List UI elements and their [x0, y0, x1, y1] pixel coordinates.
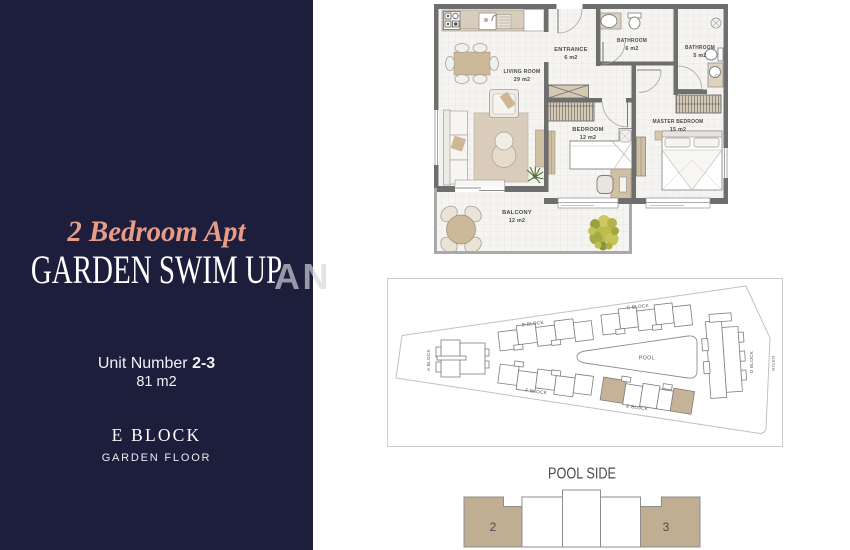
- svg-text:POOL: POOL: [639, 356, 655, 362]
- svg-text:POOL SIDE: POOL SIDE: [548, 466, 616, 483]
- svg-text:6 m2: 6 m2: [625, 46, 638, 52]
- svg-text:BATHROOM: BATHROOM: [617, 38, 647, 44]
- svg-text:BEDROOM: BEDROOM: [572, 127, 603, 133]
- svg-text:BATHROOM: BATHROOM: [685, 45, 715, 51]
- svg-text:12 m2: 12 m2: [509, 218, 526, 224]
- svg-text:RIVER: RIVER: [771, 355, 776, 371]
- svg-text:12 m2: 12 m2: [580, 135, 597, 141]
- svg-text:3: 3: [663, 520, 670, 534]
- svg-text:2: 2: [490, 520, 497, 534]
- svg-text:MASTER BEDROOM: MASTER BEDROOM: [653, 119, 704, 125]
- svg-text:D BLOCK: D BLOCK: [749, 350, 754, 373]
- svg-text:6 m2: 6 m2: [564, 55, 577, 61]
- svg-text:29 m2: 29 m2: [514, 77, 531, 83]
- svg-text:ENTRANCE: ENTRANCE: [554, 47, 588, 53]
- svg-text:LIVING ROOM: LIVING ROOM: [504, 69, 541, 75]
- svg-text:15 m2: 15 m2: [670, 127, 687, 133]
- svg-text:A BLOCK: A BLOCK: [426, 348, 431, 370]
- svg-text:5 m2: 5 m2: [693, 53, 706, 59]
- svg-text:BALCONY: BALCONY: [502, 210, 532, 216]
